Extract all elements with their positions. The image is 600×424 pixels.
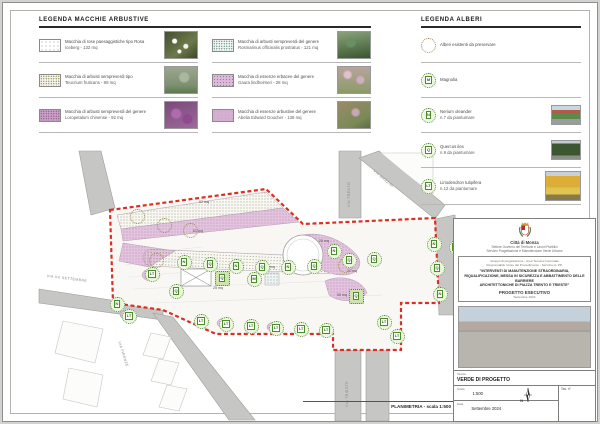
existing-tree-icon [421,38,436,53]
project-title-line-2: RIQUALIFICAZIONE, MESSA IN SICUREZZA E A… [462,274,587,284]
tree-marker-liriodendron: LT [122,309,137,324]
photo-teucrium [164,66,198,94]
area-label: 50 mq [337,293,347,297]
existing-tree-marker [149,253,164,268]
photo-rosa-iceberg [164,31,198,59]
liriodendron-tree-icon: LT [421,179,436,194]
subject-value: VERDE DI PROGETTO [457,377,592,383]
project-title-line-1: "INTERVENTI DI MANUTENZIONE STRAORDINARI… [462,269,587,274]
date-cell: Data Settembre 2024 [454,400,558,421]
legend-item-teucrium: Macchia di arbusti sempreverdi tipoTeucr… [39,63,198,98]
project-title-box: Gruppo di progettazione - Area Tecnica C… [458,256,591,302]
hatch-swatch-loropetalum [39,109,61,122]
magnolia-tree-icon: M [421,73,436,88]
scale-cell: Scala 1:500 N [454,386,558,400]
phase-note: Settembre 2024 [462,295,587,299]
plan-caption: PLANIMETRIA - scala 1:500 [303,401,453,409]
photo-liriodendron [545,171,581,201]
municipal-crest-icon [518,221,532,238]
tree-marker-quercus: Q [349,289,364,304]
scale-label: Scala [457,387,465,391]
quercus-tree-icon: Q [421,143,436,158]
area-label: 25 mq [213,286,223,290]
legend-shrubs: LEGENDA MACCHIE ARBUSTIVE Macchia di ros… [39,17,371,133]
hatch-swatch-rosa [39,39,61,52]
tree-marker-quercus: Q [203,257,218,272]
nerium-tree-icon: N [421,108,436,123]
title-block-header: Città di Monza Settore Governo del Terri… [454,219,595,254]
title-block: Città di Monza Settore Governo del Terri… [453,218,596,422]
legend-item-existing-trees: Alberi esistenti da preservare [421,28,581,63]
photo-gaura [337,66,371,94]
area-label: 62 mq [199,200,209,204]
subject-label: Tavola [457,372,592,376]
photo-rosmarinus [337,31,371,59]
tree-marker-quercus: Q [169,284,184,299]
scale-value: 1:500 [473,391,483,396]
legend-item-loropetalum: Macchia di arbusti sempreverdi del gener… [39,98,198,133]
existing-tree-marker [157,218,172,233]
tree-marker-liriodendron: LT [145,267,160,282]
sheet: 62 mq 61 mq 25 mq 24 mq 28 mq 50 mq 21 m… [2,2,598,422]
tree-marker-liriodendron: LT [269,321,284,336]
legend-item-rosa: Macchia di rose paesaggistiche tipo Rosa… [39,28,198,63]
tree-marker-liriodendron: LT [194,314,209,329]
photo-nerium [551,105,581,125]
tree-marker-nerium: N [433,287,448,302]
tree-marker-nerium: N [281,260,296,275]
date-value: Settembre 2024 [471,406,501,411]
project-title-line-3: ARCHITETTONICHE DI PIAZZA TRENTO E TRIES… [462,283,587,288]
tree-marker-liriodendron: LT [219,317,234,332]
tree-marker-nerium: N [327,244,342,259]
drawing-sheet-viewport: 62 mq 61 mq 25 mq 24 mq 28 mq 50 mq 21 m… [0,0,600,424]
department-line-2: Servizio Progettazione e Manutenzione Ve… [458,249,591,253]
tree-marker-nerium: N [229,259,244,274]
legend-item-liriodendron: LT Liriodendron tulipiferan.12 da piantu… [421,168,581,205]
tree-marker-nerium: N [110,297,125,312]
street-label: VIA TRENTO [347,182,351,207]
sheet-number-label: Tav. n° [561,387,571,391]
kiosk [181,269,211,286]
hatch-swatch-gaura [212,74,234,87]
consultants-line-2: Responsabile Unico del Procedimento - Se… [462,263,587,267]
area-label: 28 mq [319,239,329,243]
tree-marker-liriodendron: LT [377,315,392,330]
hatch-swatch-rosmarinus [212,39,234,52]
tree-marker-liriodendron: LT [319,323,334,338]
tree-marker-quercus: Q [307,259,322,274]
legend-item-nerium: N Nerium oleandern.7 da piantumare [421,98,581,133]
photo-loropetalum [164,101,198,129]
legend-trees-title: LEGENDA ALBERI [421,17,581,23]
sheet-subject: Tavola VERDE DI PROGETTO [454,370,595,385]
tree-marker-magnolia: M [247,272,262,287]
hatch-swatch-teucrium [39,74,61,87]
north-arrow-icon: N [520,388,532,403]
legend-item-rosmarinus: Macchia di arbusti sempreverdi del gener… [212,28,371,63]
existing-tree-marker [130,209,145,224]
tree-marker-liriodendron: LT [294,322,309,337]
legend-item-magnolia: M Magnolia [421,63,581,98]
legend-shrubs-title: LEGENDA MACCHIE ARBUSTIVE [39,17,371,23]
tree-marker-quercus: Q [215,271,230,286]
legend-trees: LEGENDA ALBERI Alberi esistenti da prese… [421,17,581,205]
photo-abelia [337,101,371,129]
existing-tree-marker [183,223,198,238]
tree-marker-liriodendron: LT [244,319,259,334]
tree-marker-quercus: Q [430,261,445,276]
site-photo [458,306,591,368]
tree-marker-quercus: Q [342,253,357,268]
photo-quercus [551,140,581,160]
tree-marker-nerium: N [427,237,442,252]
tree-marker-liriodendron: LT [390,329,405,344]
date-label: Data [457,402,463,406]
sheet-number-cell: Tav. n° [559,386,595,421]
tree-marker-nerium: N [177,255,192,270]
tree-marker-quercus: Q [367,252,382,267]
legend-item-quercus: Q Quercus ilexn.9 da piantumare [421,133,581,168]
hatch-swatch-abelia [212,109,234,122]
legend-item-gaura: Macchia di essenze erbacee del genereGau… [212,63,371,98]
legend-item-abelia: Macchia di essenze arbustive del genereA… [212,98,371,133]
